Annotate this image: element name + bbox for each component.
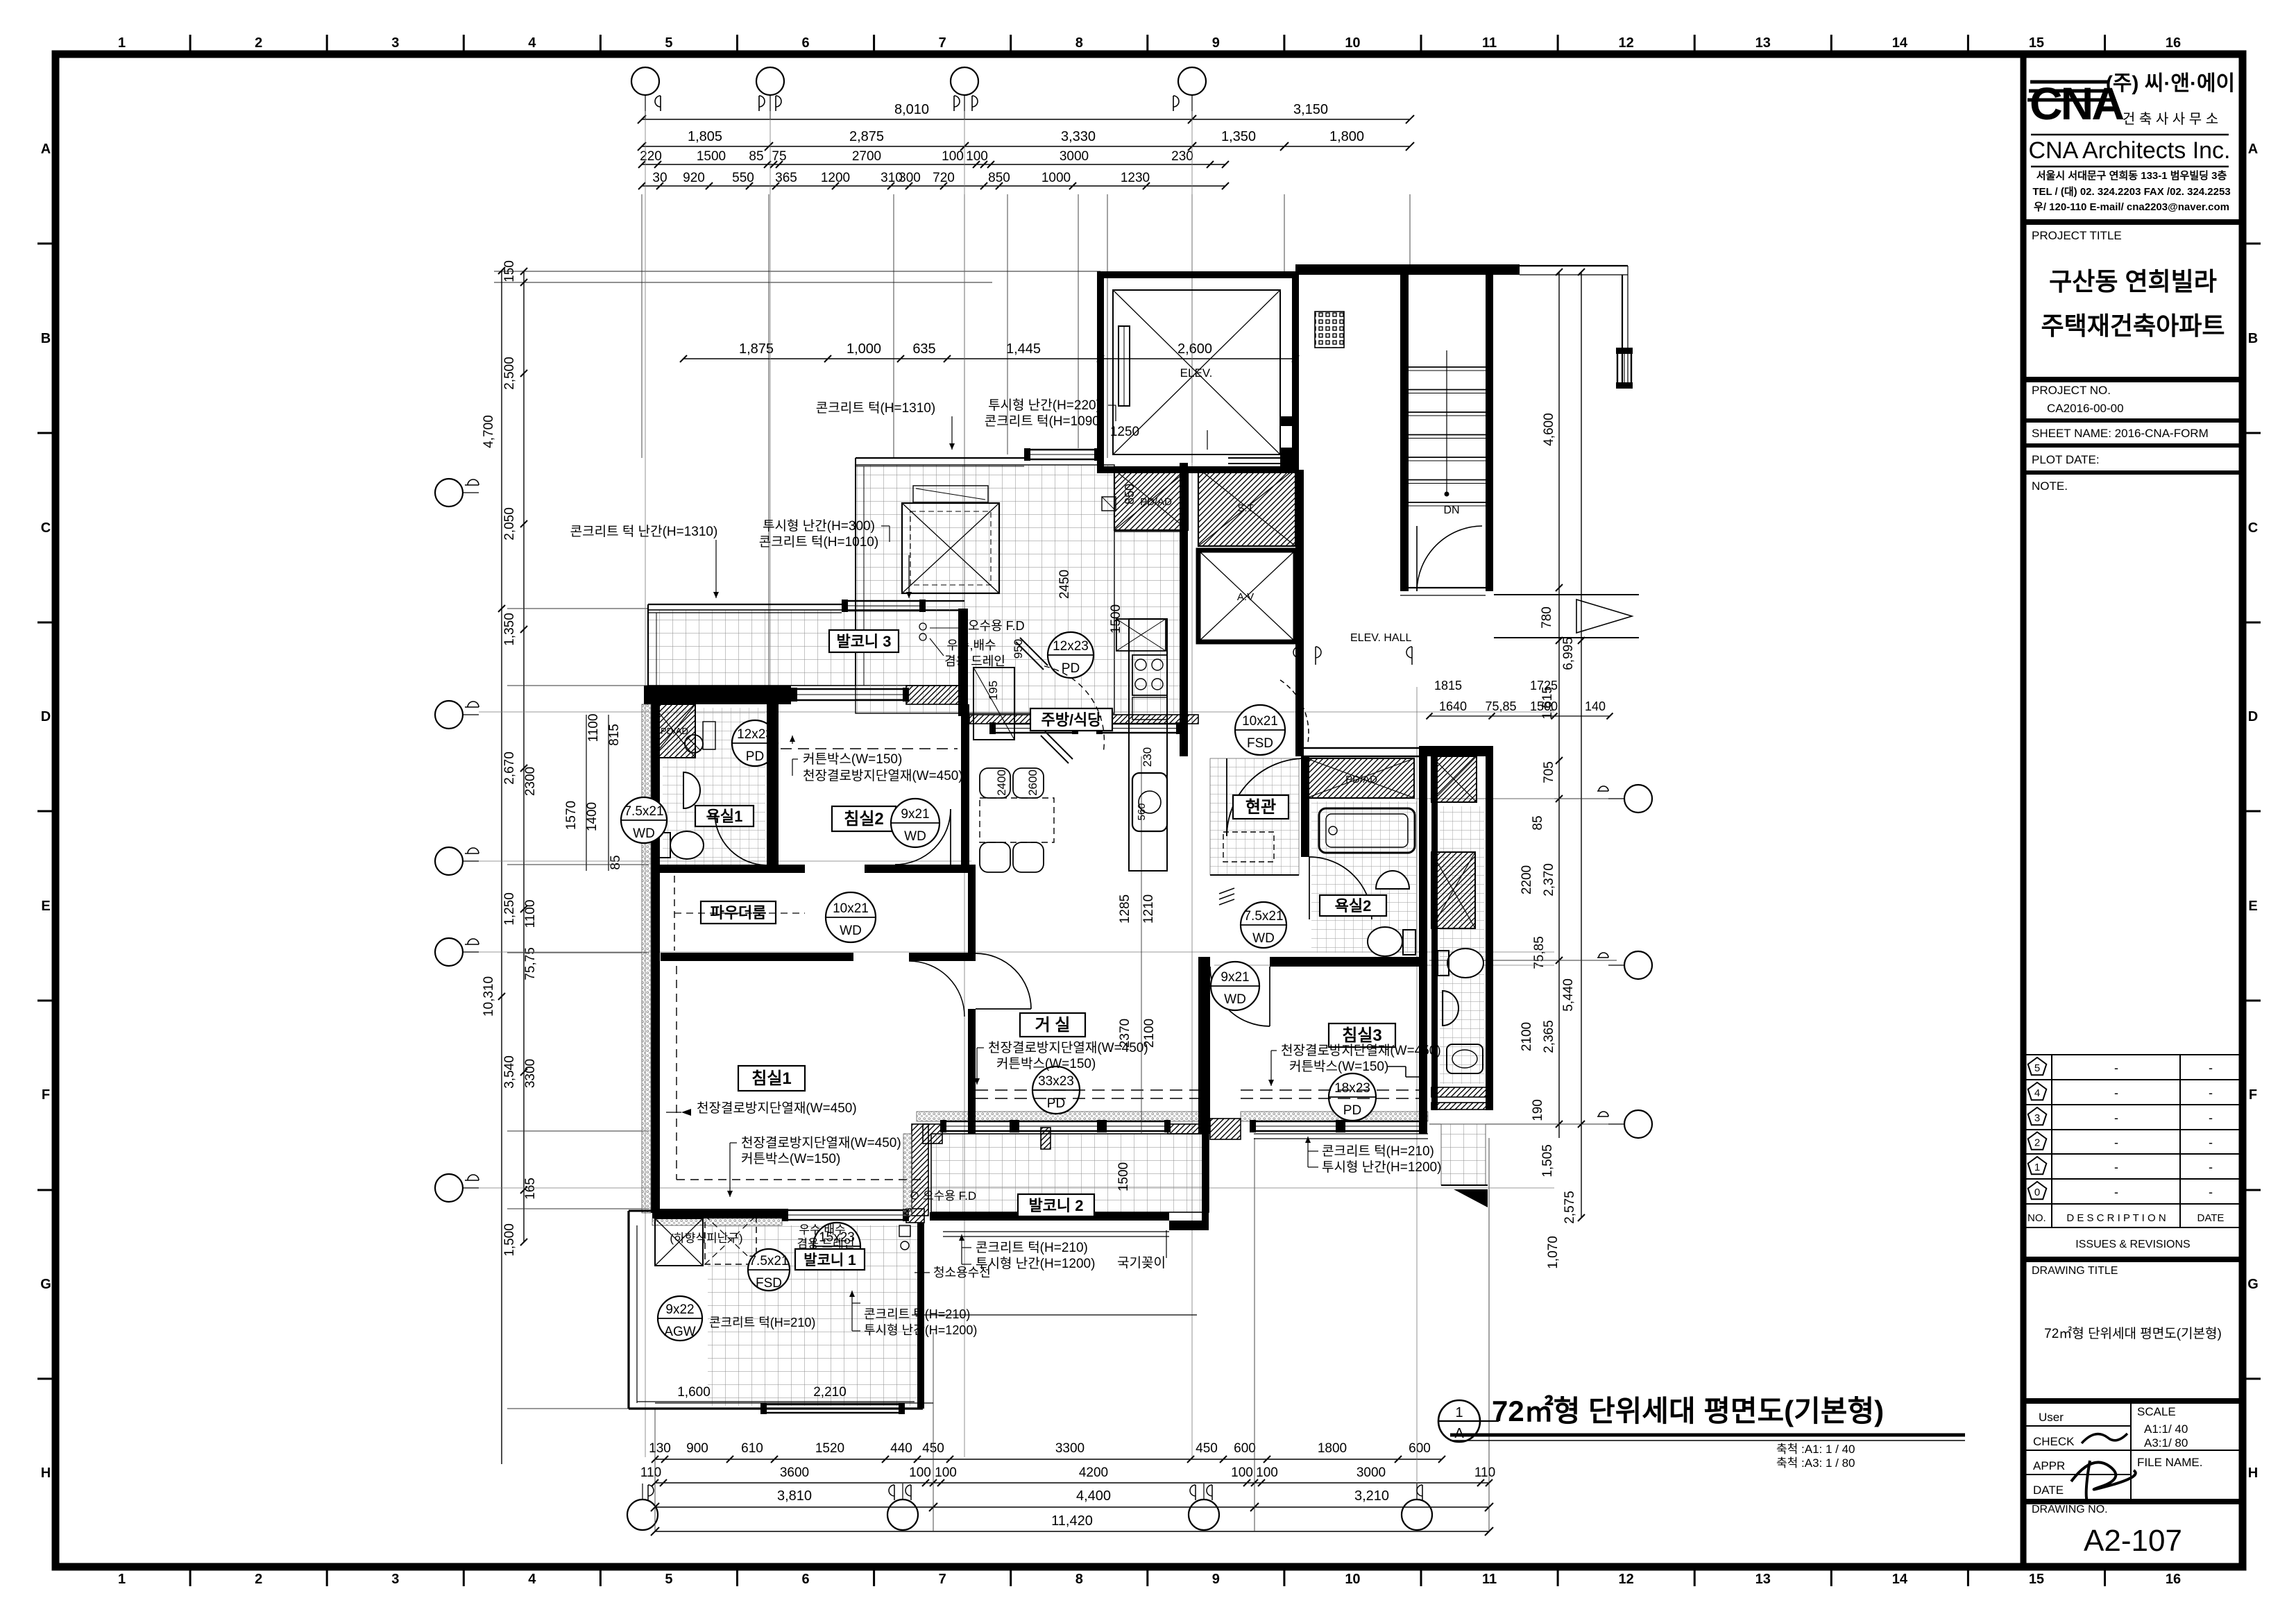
svg-text:PLOT DATE:: PLOT DATE: [2032, 453, 2100, 466]
svg-text:1,505: 1,505 [1540, 1144, 1555, 1178]
svg-text:2,875: 2,875 [849, 129, 884, 144]
svg-text:9: 9 [1212, 35, 1220, 51]
svg-text:WD: WD [904, 829, 926, 844]
svg-text:1,500: 1,500 [502, 1223, 517, 1257]
svg-text:D: D [2248, 709, 2258, 724]
svg-text:14: 14 [1892, 1572, 1908, 1587]
svg-text:축척 :A1: 1 / 40: 축척 :A1: 1 / 40 [1776, 1443, 1855, 1456]
svg-text:4: 4 [528, 35, 536, 51]
svg-text:콘크리트 턱(H=210): 콘크리트 턱(H=210) [1322, 1144, 1434, 1159]
svg-text:8,010: 8,010 [894, 102, 929, 117]
svg-text:13: 13 [1755, 1572, 1771, 1587]
svg-text:주방/식당: 주방/식당 [1041, 711, 1101, 729]
svg-text:8: 8 [1075, 35, 1083, 51]
svg-text:140: 140 [1585, 699, 1606, 713]
svg-text:1500: 1500 [1530, 699, 1558, 713]
svg-text:DN: DN [1443, 504, 1459, 516]
svg-text:14: 14 [1892, 35, 1908, 51]
svg-text:5: 5 [665, 1572, 672, 1587]
svg-text:PD/AD: PD/AD [661, 726, 688, 736]
svg-text:콘크리트 턱(H=210): 콘크리트 턱(H=210) [864, 1307, 970, 1321]
svg-text:85: 85 [749, 149, 763, 164]
svg-text:75,85: 75,85 [1532, 936, 1547, 969]
svg-text:610: 610 [741, 1441, 763, 1456]
svg-text:B: B [41, 331, 51, 346]
svg-text:SCALE: SCALE [2137, 1405, 2176, 1418]
svg-text:콘크리트 턱(H=1090): 콘크리트 턱(H=1090) [985, 414, 1104, 429]
svg-text:A3:1/ 80: A3:1/ 80 [2144, 1436, 2188, 1450]
svg-text:1100: 1100 [523, 900, 538, 928]
svg-text:705: 705 [1542, 761, 1556, 783]
svg-text:H: H [2248, 1465, 2258, 1481]
svg-text:12x23: 12x23 [1053, 639, 1089, 654]
svg-text:2400: 2400 [995, 770, 1008, 796]
svg-text:1: 1 [118, 35, 126, 51]
svg-text:1: 1 [1455, 1405, 1463, 1420]
svg-text:720: 720 [933, 171, 955, 185]
svg-text:DATE: DATE [2197, 1212, 2225, 1224]
svg-text:2370: 2370 [1118, 1019, 1132, 1048]
svg-text:10: 10 [1345, 35, 1360, 51]
svg-text:-: - [2114, 1185, 2118, 1199]
svg-text:오수용 F.D: 오수용 F.D [968, 619, 1025, 633]
svg-text:콘크리트 턱 난간(H=1310): 콘크리트 턱 난간(H=1310) [570, 524, 718, 539]
svg-text:150: 150 [502, 260, 517, 282]
svg-text:PD/AD: PD/AD [1140, 496, 1172, 508]
svg-text:165: 165 [523, 1178, 538, 1200]
svg-text:9x21: 9x21 [901, 807, 929, 822]
svg-text:920: 920 [683, 171, 705, 185]
svg-text:1200: 1200 [821, 171, 850, 185]
svg-text:FSD: FSD [756, 1276, 782, 1291]
svg-text:발코니 2: 발코니 2 [1028, 1197, 1083, 1214]
svg-text:9x21: 9x21 [1221, 970, 1249, 985]
svg-text:110: 110 [640, 1465, 661, 1480]
svg-text:1,800: 1,800 [1329, 129, 1364, 144]
svg-text:7: 7 [939, 35, 946, 51]
svg-text:F: F [42, 1087, 50, 1103]
svg-text:욕실2: 욕실2 [1335, 897, 1372, 915]
svg-text:1500: 1500 [1116, 1162, 1131, 1191]
svg-text:3,540: 3,540 [502, 1055, 517, 1089]
svg-text:230: 230 [1171, 149, 1193, 164]
svg-text:100: 100 [966, 149, 988, 164]
svg-text:겸용 드레인: 겸용 드레인 [944, 654, 1005, 668]
svg-text:오수용 F.D: 오수용 F.D [923, 1189, 976, 1203]
svg-text:2: 2 [255, 35, 262, 51]
svg-text:1,805: 1,805 [688, 129, 722, 144]
svg-text:7.5x21: 7.5x21 [624, 804, 663, 819]
svg-text:5: 5 [665, 35, 672, 51]
svg-text:-: - [2209, 1185, 2213, 1199]
svg-text:User: User [2039, 1411, 2064, 1424]
svg-text:커튼박스(W=150): 커튼박스(W=150) [996, 1056, 1096, 1071]
svg-text:1,070: 1,070 [1546, 1236, 1561, 1269]
svg-text:2,670: 2,670 [502, 751, 517, 785]
svg-text:9: 9 [1212, 1572, 1220, 1587]
svg-text:NO.: NO. [2027, 1212, 2046, 1224]
svg-text:구산동 연희빌라: 구산동 연희빌라 [2049, 267, 2217, 296]
svg-text:3,330: 3,330 [1061, 129, 1096, 144]
svg-text:TEL / (대) 02. 324.2203 FAX: TEL / (대) 02. 324.2203 FAX /02. 324.2253 [2032, 186, 2230, 198]
svg-text:16: 16 [2166, 1572, 2181, 1587]
svg-text:-: - [2209, 1111, 2213, 1125]
svg-text:440: 440 [890, 1441, 912, 1456]
svg-text:CHECK: CHECK [2033, 1435, 2075, 1448]
svg-text:550: 550 [732, 171, 754, 185]
svg-text:투시형 난간(H=300): 투시형 난간(H=300) [763, 518, 875, 534]
svg-text:천장결로방지단열재(W=450): 천장결로방지단열재(W=450) [1281, 1043, 1441, 1058]
svg-text:2,500: 2,500 [502, 357, 517, 390]
svg-text:600: 600 [1234, 1441, 1256, 1456]
svg-text:4,400: 4,400 [1076, 1488, 1111, 1504]
svg-text:PD/AD: PD/AD [1345, 774, 1377, 785]
svg-text:3000: 3000 [1060, 149, 1089, 164]
svg-text:발코니 1: 발코니 1 [803, 1252, 856, 1268]
svg-text:D E S C R I P T I O N: D E S C R I P T I O N [2066, 1212, 2166, 1224]
svg-text:85: 85 [609, 855, 623, 869]
svg-text:10x21: 10x21 [1242, 714, 1278, 729]
svg-text:투시형 난간(H=1200): 투시형 난간(H=1200) [976, 1256, 1095, 1271]
svg-text:450: 450 [1196, 1441, 1218, 1456]
svg-text:1,250: 1,250 [502, 892, 517, 926]
svg-text:침실3: 침실3 [1342, 1026, 1382, 1045]
svg-text:축척 :A3: 1 / 80: 축척 :A3: 1 / 80 [1776, 1456, 1855, 1470]
svg-text:33x23: 33x23 [1038, 1074, 1074, 1089]
svg-text:콘크리트 턱(H=210): 콘크리트 턱(H=210) [709, 1316, 815, 1329]
svg-text:2700: 2700 [852, 149, 881, 164]
svg-text:3300: 3300 [523, 1059, 538, 1088]
svg-text:WD: WD [1224, 992, 1246, 1007]
svg-text:7.5x21: 7.5x21 [1243, 909, 1283, 924]
svg-text:72㎡형 단위세대 평면도(기본형): 72㎡형 단위세대 평면도(기본형) [1492, 1395, 1884, 1427]
svg-text:850: 850 [1123, 484, 1137, 504]
svg-text:-: - [2209, 1061, 2213, 1075]
svg-text:2100: 2100 [1520, 1022, 1534, 1051]
svg-text:-: - [2114, 1061, 2118, 1075]
svg-text:1815: 1815 [1434, 679, 1462, 692]
svg-text:2,600: 2,600 [1177, 341, 1212, 357]
svg-text:10: 10 [1345, 1572, 1360, 1587]
svg-text:100: 100 [942, 149, 964, 164]
svg-text:주택재건축아파트: 주택재건축아파트 [2041, 312, 2225, 340]
svg-text:6,995: 6,995 [1561, 637, 1576, 670]
svg-text:900: 900 [686, 1441, 708, 1456]
svg-text:1: 1 [118, 1572, 126, 1587]
svg-text:1100: 1100 [586, 714, 601, 742]
svg-text:220: 220 [640, 149, 662, 164]
svg-text:A: A [41, 142, 51, 157]
svg-text:3,810: 3,810 [777, 1488, 812, 1504]
svg-text:1285: 1285 [1118, 894, 1132, 924]
svg-text:100: 100 [1231, 1465, 1253, 1480]
svg-text:B: B [2248, 331, 2258, 346]
svg-text:16: 16 [2166, 35, 2181, 51]
svg-text:PD: PD [1343, 1103, 1361, 1118]
svg-text:1,350: 1,350 [502, 613, 517, 646]
svg-text:ISSUES & REVISIONS: ISSUES & REVISIONS [2075, 1239, 2190, 1250]
svg-text:2200: 2200 [1520, 865, 1534, 894]
svg-text:3600: 3600 [780, 1465, 809, 1480]
svg-text:2300: 2300 [523, 767, 538, 796]
svg-text:13: 13 [1755, 35, 1771, 51]
svg-text:WD: WD [1252, 931, 1275, 946]
svg-text:365: 365 [775, 171, 797, 185]
svg-text:천장결로방지단열재(W=450): 천장결로방지단열재(W=450) [741, 1135, 901, 1150]
svg-text:청소용수전: 청소용수전 [933, 1266, 991, 1280]
svg-text:1: 1 [2034, 1162, 2040, 1173]
svg-text:H: H [41, 1465, 51, 1481]
svg-text:195: 195 [987, 681, 1000, 700]
svg-text:우수,배수: 우수,배수 [799, 1223, 845, 1237]
svg-text:7.5x21: 7.5x21 [749, 1254, 788, 1268]
svg-text:6: 6 [801, 35, 809, 51]
svg-text:커튼박스(W=150): 커튼박스(W=150) [803, 751, 902, 767]
svg-text:7: 7 [939, 1572, 946, 1587]
svg-text:1,600: 1,600 [677, 1385, 711, 1400]
svg-text:투시형 난간(H=1200): 투시형 난간(H=1200) [1322, 1159, 1441, 1175]
svg-text:3,210: 3,210 [1354, 1488, 1389, 1504]
svg-text:1,350: 1,350 [1221, 129, 1256, 144]
svg-text:콘크리트 턱(H=1310): 콘크리트 턱(H=1310) [816, 400, 935, 416]
svg-text:75,85: 75,85 [1485, 699, 1516, 713]
svg-text:11: 11 [1482, 35, 1497, 51]
svg-text:3,150: 3,150 [1293, 102, 1328, 117]
svg-text:950: 950 [1012, 639, 1025, 658]
svg-text:100: 100 [935, 1465, 957, 1480]
svg-text:130: 130 [649, 1441, 671, 1456]
svg-text:FSD: FSD [1247, 736, 1273, 751]
svg-text:우/ 120-110 E-mail/ cna2203@: 우/ 120-110 E-mail/ cna2203@naver.com [2034, 201, 2229, 213]
svg-text:110: 110 [1474, 1465, 1495, 1480]
svg-text:현관: 현관 [1245, 798, 1276, 817]
svg-text:(하향식피난구): (하향식피난구) [670, 1232, 742, 1245]
svg-text:1,445: 1,445 [1006, 341, 1041, 357]
svg-text:2,210: 2,210 [813, 1385, 847, 1400]
svg-text:560: 560 [1136, 803, 1148, 820]
svg-text:투시형 난간(H=220): 투시형 난간(H=220) [988, 398, 1100, 413]
svg-text:A2-107: A2-107 [2084, 1524, 2182, 1558]
svg-text:600: 600 [1409, 1441, 1431, 1456]
svg-text:2: 2 [255, 1572, 262, 1587]
svg-text:F: F [2249, 1087, 2257, 1103]
svg-text:4200: 4200 [1079, 1465, 1108, 1480]
svg-text:커튼박스(W=150): 커튼박스(W=150) [1289, 1059, 1388, 1074]
svg-text:30: 30 [652, 171, 667, 185]
svg-text:3300: 3300 [1055, 1441, 1085, 1456]
svg-text:1230: 1230 [1121, 171, 1150, 185]
svg-text:1570: 1570 [564, 801, 579, 830]
svg-text:230: 230 [1141, 747, 1154, 767]
svg-text:SHEET NAME: 2016-CNA-FORM: SHEET NAME: 2016-CNA-FORM [2032, 427, 2209, 440]
svg-text:침실1: 침실1 [751, 1069, 792, 1088]
svg-text:S.T: S.T [1237, 502, 1253, 514]
svg-text:190: 190 [1531, 1099, 1545, 1121]
svg-text:D: D [41, 709, 51, 724]
svg-text:1,000: 1,000 [847, 341, 881, 357]
svg-text:6: 6 [801, 1572, 809, 1587]
svg-text:AGW: AGW [664, 1325, 695, 1339]
svg-text:우수,배수: 우수,배수 [946, 638, 996, 652]
svg-text:CA2016-00-00: CA2016-00-00 [2047, 402, 2124, 415]
svg-text:-: - [2114, 1136, 2118, 1150]
svg-text:국기꽂이: 국기꽂이 [1117, 1255, 1166, 1271]
svg-text:-: - [2209, 1160, 2213, 1174]
svg-text:건 축 사 사 무 소: 건 축 사 사 무 소 [2123, 111, 2218, 127]
svg-text:1400: 1400 [585, 802, 599, 831]
svg-text:2,370: 2,370 [1542, 863, 1556, 897]
svg-text:E: E [41, 899, 50, 914]
svg-text:투시형 난간(H=1200): 투시형 난간(H=1200) [864, 1323, 977, 1337]
svg-text:75: 75 [772, 149, 786, 164]
svg-text:ELEV.: ELEV. [1180, 366, 1213, 380]
svg-text:3: 3 [391, 35, 399, 51]
svg-text:1640: 1640 [1439, 699, 1467, 713]
svg-text:1520: 1520 [815, 1441, 844, 1456]
svg-text:780: 780 [1540, 606, 1554, 629]
svg-text:10x21: 10x21 [833, 901, 869, 916]
svg-text:1000: 1000 [1041, 171, 1071, 185]
svg-text:3: 3 [2034, 1112, 2040, 1124]
svg-text:2,575: 2,575 [1563, 1191, 1577, 1224]
svg-text:ELEV. HALL: ELEV. HALL [1350, 632, 1411, 644]
svg-text:(주) 씨·앤·에이: (주) 씨·앤·에이 [2106, 72, 2235, 95]
svg-text:2600: 2600 [1026, 770, 1039, 796]
svg-text:NOTE.: NOTE. [2032, 479, 2068, 493]
svg-text:-: - [2209, 1086, 2213, 1100]
svg-text:거 실: 거 실 [1035, 1016, 1071, 1035]
svg-text:천장결로방지단열재(W=450): 천장결로방지단열재(W=450) [803, 768, 963, 783]
svg-text:2,365: 2,365 [1542, 1020, 1556, 1053]
svg-text:1725: 1725 [1530, 679, 1558, 692]
svg-text:5,440: 5,440 [1561, 978, 1576, 1012]
svg-text:15: 15 [2029, 35, 2044, 51]
svg-text:1,875: 1,875 [739, 341, 774, 357]
svg-text:2450: 2450 [1057, 570, 1072, 599]
svg-text:635: 635 [912, 341, 935, 357]
svg-text:850: 850 [988, 171, 1010, 185]
svg-text:PROJECT NO.: PROJECT NO. [2032, 384, 2111, 397]
svg-text:콘크리트 턱(H=1010): 콘크리트 턱(H=1010) [759, 534, 878, 550]
svg-text:2100: 2100 [1142, 1019, 1157, 1048]
svg-text:10,310: 10,310 [482, 976, 496, 1017]
svg-text:3000: 3000 [1357, 1465, 1386, 1480]
svg-text:CNA Architects Inc.: CNA Architects Inc. [2029, 137, 2231, 164]
svg-text:8: 8 [1075, 1572, 1083, 1587]
svg-text:100: 100 [1256, 1465, 1278, 1480]
svg-text:1800: 1800 [1318, 1441, 1347, 1456]
svg-text:72㎡형 단위세대 평면도(기본형): 72㎡형 단위세대 평면도(기본형) [2044, 1325, 2222, 1341]
svg-text:4,700: 4,700 [482, 415, 496, 448]
svg-text:100: 100 [909, 1465, 931, 1480]
svg-text:1250: 1250 [1110, 425, 1139, 439]
svg-text:1500: 1500 [1109, 604, 1123, 634]
svg-text:-: - [2114, 1086, 2118, 1100]
svg-text:WD: WD [633, 826, 655, 841]
svg-text:A1:1/ 40: A1:1/ 40 [2144, 1422, 2188, 1436]
svg-text:서울시 서대문구 연희동 133-1 범우빌딩 3층: 서울시 서대문구 연희동 133-1 범우빌딩 3층 [2036, 169, 2227, 182]
svg-text:12: 12 [1619, 1572, 1634, 1587]
svg-text:12: 12 [1619, 35, 1634, 51]
svg-text:300: 300 [899, 171, 921, 185]
svg-text:1500: 1500 [697, 149, 726, 164]
svg-text:-: - [2114, 1160, 2118, 1174]
svg-text:4: 4 [528, 1572, 536, 1587]
svg-text:-: - [2209, 1136, 2213, 1150]
svg-text:E: E [2248, 899, 2257, 914]
svg-text:11: 11 [1482, 1572, 1497, 1587]
svg-text:C: C [2248, 520, 2258, 536]
svg-text:발코니 3: 발코니 3 [836, 633, 891, 650]
svg-text:4: 4 [2034, 1087, 2040, 1099]
svg-text:WD: WD [840, 924, 862, 938]
svg-text:9x22: 9x22 [665, 1302, 694, 1317]
svg-text:DRAWING TITLE: DRAWING TITLE [2032, 1265, 2118, 1277]
svg-text:85: 85 [1531, 815, 1545, 830]
svg-text:5: 5 [2034, 1062, 2040, 1074]
svg-text:FILE NAME.: FILE NAME. [2137, 1456, 2202, 1469]
svg-text:4,600: 4,600 [1542, 413, 1556, 446]
svg-text:천장결로방지단열재(W=450): 천장결로방지단열재(W=450) [697, 1101, 857, 1116]
svg-text:G: G [40, 1277, 51, 1292]
svg-text:A.V: A.V [1237, 591, 1254, 603]
svg-text:2,050: 2,050 [502, 507, 517, 541]
svg-text:욕실1: 욕실1 [706, 808, 743, 825]
svg-text:C: C [41, 520, 51, 536]
svg-text:0: 0 [2034, 1187, 2040, 1198]
svg-text:815: 815 [607, 724, 622, 746]
svg-text:DATE: DATE [2033, 1484, 2064, 1497]
svg-text:3: 3 [391, 1572, 399, 1587]
svg-text:2: 2 [2034, 1137, 2040, 1149]
svg-text:커튼박스(W=150): 커튼박스(W=150) [741, 1151, 840, 1166]
svg-text:APPR: APPR [2033, 1459, 2065, 1472]
svg-text:11,420: 11,420 [1051, 1513, 1093, 1529]
svg-text:PROJECT TITLE: PROJECT TITLE [2032, 229, 2122, 242]
svg-text:15: 15 [2029, 1572, 2044, 1587]
svg-text:18x23: 18x23 [1334, 1081, 1370, 1096]
svg-text:콘크리트 턱(H=210): 콘크리트 턱(H=210) [976, 1240, 1088, 1255]
svg-text:PD: PD [746, 749, 764, 764]
svg-text:G: G [2247, 1277, 2259, 1292]
svg-text:-: - [2114, 1111, 2118, 1125]
svg-text:1210: 1210 [1141, 894, 1156, 924]
svg-text:A: A [2248, 142, 2258, 157]
svg-text:DRAWING NO.: DRAWING NO. [2032, 1504, 2108, 1515]
svg-text:침실2: 침실2 [844, 810, 884, 829]
